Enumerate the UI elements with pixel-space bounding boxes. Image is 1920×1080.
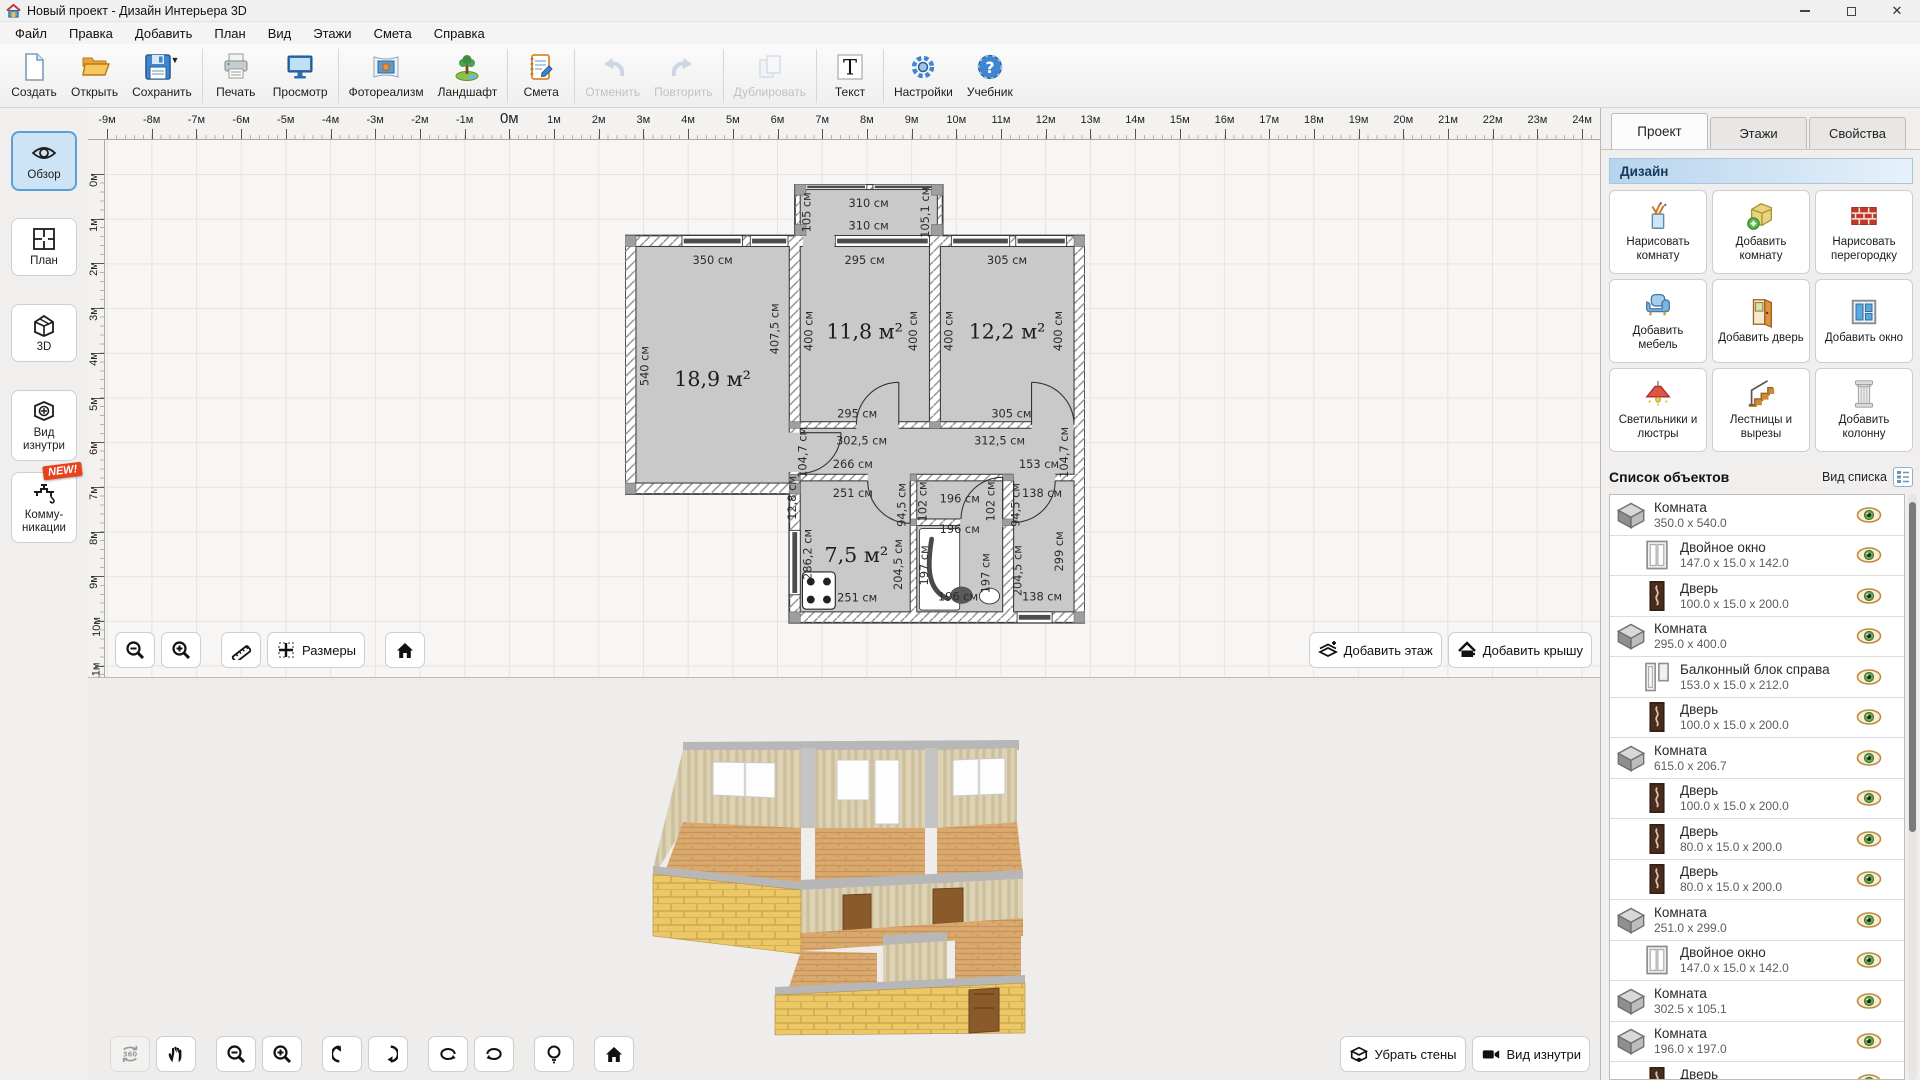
ruler-h-label: 24м [1572, 114, 1592, 126]
save-dropdown-arrow-icon[interactable]: ▼ [171, 55, 180, 65]
rotate-down-button[interactable] [368, 1036, 408, 1072]
visibility-eye-icon[interactable] [1856, 506, 1882, 524]
object-list-item[interactable]: Двойное окно147.0 x 15.0 x 142.0 [1610, 536, 1904, 577]
menu-item-3[interactable]: План [203, 24, 256, 43]
ruler-h-label: 13м [1080, 114, 1100, 126]
zoom-out-icon [226, 1044, 246, 1064]
ruler-tick [375, 129, 376, 139]
door-icon [1642, 782, 1672, 814]
orbit-right-button[interactable] [474, 1036, 514, 1072]
toolbar-label: Ландшафт [438, 85, 498, 99]
plan-dimension-label: 94,5 см [1008, 483, 1022, 527]
list-view-mode-button[interactable] [1893, 467, 1913, 487]
object-name: Двойное окно [1680, 945, 1789, 960]
ruler-tick [733, 129, 734, 139]
toolbar-label: Печать [216, 85, 255, 99]
plan-dimension-label: 400 см [942, 311, 956, 351]
ruler-h-label: 4м [681, 114, 695, 126]
visibility-eye-icon[interactable] [1856, 749, 1882, 767]
add-column-button[interactable]: Добавить колонну [1815, 368, 1913, 452]
draw-room-button[interactable]: Нарисовать комнату [1609, 190, 1707, 274]
hand-icon [166, 1044, 186, 1064]
design-button-label: Добавить окно [1825, 332, 1903, 346]
ruler-tick [95, 263, 104, 264]
window-icon [1848, 296, 1880, 328]
view3d-zoom-in-button[interactable] [262, 1036, 302, 1072]
plan-dimension-label: 197 см [978, 553, 992, 593]
plan-dimension-label: 310 см [848, 196, 888, 210]
menu-item-4[interactable]: Вид [257, 24, 303, 43]
sidebar-item-view-inside[interactable]: Вид изнутри [11, 390, 77, 461]
plan-dimension-label: 400 см [1051, 311, 1065, 351]
ruler-v-label: 2м [88, 263, 100, 277]
ruler-tick [1493, 129, 1494, 139]
visibility-eye-icon[interactable] [1856, 870, 1882, 888]
ruler-tick [1403, 129, 1404, 139]
window-title: Новый проект - Дизайн Интерьера 3D [27, 4, 247, 18]
add-floor-icon [1318, 640, 1338, 660]
ruler-v-label: 6м [88, 441, 100, 455]
settings-button[interactable]: Настройки [887, 50, 960, 101]
tab-properties[interactable]: Свойства [1809, 117, 1906, 149]
ruler-tick [241, 129, 242, 139]
visibility-eye-icon[interactable] [1856, 830, 1882, 848]
room-area-label: 7,5 м² [825, 543, 889, 567]
plan-dimension-label: 286,2 см [801, 529, 815, 580]
ruler-tick [778, 129, 779, 139]
plan-dimension-label: 540 см [638, 346, 652, 386]
toolbar-label: Отменить [585, 85, 640, 99]
door-icon [1642, 823, 1672, 855]
object-name: Дверь [1680, 581, 1789, 596]
ruler-v-label: 9м [88, 575, 100, 589]
object-dimensions: 295.0 x 400.0 [1654, 637, 1727, 651]
plan-dimension-label: 299 см [1052, 531, 1066, 571]
brick-wall-icon [1848, 200, 1880, 232]
toolbar-separator [507, 49, 508, 103]
rotate-vertical-icon [378, 1044, 398, 1064]
sidebar-label: 3D [37, 341, 52, 354]
lighting-button[interactable] [534, 1036, 574, 1072]
ruler-tick [286, 129, 287, 139]
visibility-eye-icon[interactable] [1856, 546, 1882, 564]
object-name: Комната [1654, 743, 1727, 758]
toolbar-label: Создать [11, 85, 57, 99]
tutorial-button[interactable]: ? Учебник [960, 50, 1020, 101]
ruler-h-label: 22м [1483, 114, 1503, 126]
photorealism-button[interactable]: Фотореализм [342, 50, 431, 101]
ruler-tick [331, 129, 332, 139]
menu-item-0[interactable]: Файл [4, 24, 58, 43]
svg-text:360: 360 [123, 1051, 137, 1059]
ruler-h-label: -7м [188, 114, 205, 126]
view3d-area[interactable]: 360 [88, 677, 1600, 1080]
add-door-button[interactable]: Добавить дверь [1712, 279, 1810, 363]
ruler-h-label: 6м [771, 114, 785, 126]
object-name: Дверь [1680, 783, 1789, 798]
room-icon [1616, 742, 1646, 774]
plan-dimension-label: 105,1 см [918, 187, 932, 238]
ruler-h-label: -2м [411, 114, 428, 126]
visibility-eye-icon[interactable] [1856, 911, 1882, 929]
ruler-v-label: 3м [88, 307, 100, 321]
design-button-label: Добавить комнату [1715, 236, 1807, 264]
close-button[interactable]: ✕ [1874, 0, 1920, 22]
ruler-tick [95, 398, 104, 399]
sidebar-item-3d[interactable]: 3D [11, 304, 77, 362]
object-dimensions: 147.0 x 15.0 x 142.0 [1680, 556, 1789, 570]
remove-walls-label: Убрать стены [1375, 1047, 1457, 1062]
visibility-eye-icon[interactable] [1856, 627, 1882, 645]
column-icon [1848, 378, 1880, 410]
plan-dimension-label: 400 см [906, 311, 920, 351]
ruler-tick [643, 129, 644, 139]
open-button[interactable]: Открыть [64, 50, 125, 101]
ruler-tick [1537, 129, 1538, 139]
estimate-button[interactable]: Смета [511, 50, 571, 101]
visibility-eye-icon[interactable] [1856, 587, 1882, 605]
zoom-in-icon [272, 1044, 292, 1064]
ruler-tick [95, 487, 104, 488]
object-list-item[interactable]: Балконный блок справа153.0 x 15.0 x 212.… [1610, 657, 1904, 698]
menu-item-7[interactable]: Справка [423, 24, 496, 43]
door-icon [1642, 580, 1672, 612]
plan-zoom-in-button[interactable] [161, 632, 201, 668]
add-roof-icon [1457, 640, 1477, 660]
object-name: Дверь [1680, 1067, 1782, 1080]
visibility-eye-icon[interactable] [1856, 1073, 1882, 1080]
new-badge: NEW! [42, 462, 83, 481]
ruler-tick [1269, 129, 1270, 139]
object-dimensions: 100.0 x 15.0 x 200.0 [1680, 597, 1789, 611]
floor-plan-icon [31, 226, 57, 252]
design-button-label: Добавить дверь [1718, 332, 1804, 346]
ruler-h-label: 11м [992, 114, 1011, 126]
ruler-tick [1582, 129, 1583, 139]
object-list-item[interactable]: Комната350.0 x 540.0 [1610, 495, 1904, 536]
object-dimensions: 80.0 x 15.0 x 200.0 [1680, 840, 1782, 854]
remove-walls-button[interactable]: Убрать стены [1340, 1036, 1466, 1072]
camera-icon [1481, 1044, 1501, 1064]
object-list-item[interactable]: Комната251.0 x 299.0 [1610, 900, 1904, 941]
ruler-h-label: 10м [946, 114, 966, 126]
design-button-label: Светильники и люстры [1612, 414, 1704, 442]
ruler-tick [95, 308, 104, 309]
object-list-item[interactable]: Комната615.0 x 206.7 [1610, 738, 1904, 779]
horizontal-ruler: -9м-8м-7м-6м-5м-4м-3м-2м-1м0м1м2м3м4м5м6… [88, 108, 1600, 140]
add-window-button[interactable]: Добавить окно [1815, 279, 1913, 363]
plan-dimension-label: 138 см [1022, 589, 1062, 603]
faucet-icon [31, 480, 57, 506]
tree-icon [452, 52, 482, 82]
object-list-item[interactable]: Дверь100.0 x 15.0 x 200.0 [1610, 576, 1904, 617]
object-name: Комната [1654, 621, 1727, 636]
scrollbar-thumb[interactable] [1909, 502, 1916, 832]
ruler-h-label: 23м [1527, 114, 1547, 126]
ruler-tick [509, 129, 510, 139]
save-button[interactable]: ▼ Сохранить [125, 50, 199, 101]
home-icon [604, 1044, 624, 1064]
plan-dimension-label: 153 см [1019, 457, 1059, 471]
object-dimensions: 153.0 x 15.0 x 212.0 [1680, 678, 1830, 692]
plan-dimension-label: 312,5 см [974, 433, 1025, 447]
room-icon [1616, 620, 1646, 652]
new-project-button[interactable]: Создать [4, 50, 64, 101]
door-icon [1745, 296, 1777, 328]
visibility-eye-icon[interactable] [1856, 1032, 1882, 1050]
home-icon [395, 640, 415, 660]
door-icon [1642, 701, 1672, 733]
plan-dimension-label: 350 см [693, 253, 733, 267]
ruler-h-label: -4м [322, 114, 339, 126]
orbit-left-button[interactable] [428, 1036, 468, 1072]
titlebar: Новый проект - Дизайн Интерьера 3D ✕ [0, 0, 1920, 22]
eye-icon [31, 140, 57, 166]
visibility-eye-icon[interactable] [1856, 708, 1882, 726]
ruler-v-label: 4м [88, 352, 100, 366]
add-furniture-button[interactable]: Добавить мебель [1609, 279, 1707, 363]
plan-dimension-label: 105 см [800, 192, 814, 232]
new-document-icon [19, 52, 49, 82]
minimize-button[interactable] [1782, 0, 1828, 22]
menu-item-6[interactable]: Смета [363, 24, 423, 43]
print-button[interactable]: Печать [206, 50, 266, 101]
orbit-horizontal-icon [438, 1044, 458, 1064]
toolbar-label: Смета [524, 85, 559, 99]
draw-partition-button[interactable]: Нарисовать перегородку [1815, 190, 1913, 274]
ruler-v-label: 0м [88, 173, 100, 187]
text-button[interactable]: T Текст [820, 50, 880, 101]
ruler-h-label: 8м [860, 114, 874, 126]
ruler-tick [95, 576, 104, 577]
object-list-item[interactable]: Дверь80.0 x 15.0 x 200.0 [1610, 819, 1904, 860]
door-icon [1642, 863, 1672, 895]
interior-view-icon [31, 398, 57, 424]
ruler-tick [867, 129, 868, 139]
text-icon: T [835, 52, 865, 82]
main-toolbar: Создать Открыть ▼ Сохранить Печать Просм… [0, 44, 1920, 108]
plan-dimension-label: 204,5 см [1010, 545, 1024, 596]
ruler-tick [1359, 129, 1360, 139]
ruler-v-label: 7м [88, 486, 100, 500]
landscape-button[interactable]: Ландшафт [431, 50, 505, 101]
toolbar-separator [723, 49, 724, 103]
design-button-label: Нарисовать комнату [1612, 236, 1704, 264]
window-icon [1642, 944, 1672, 976]
sidebar-item-overview[interactable]: Обзор [11, 131, 77, 191]
duplicate-button: Дублировать [727, 50, 813, 101]
visibility-eye-icon[interactable] [1856, 668, 1882, 686]
object-dimensions: 196.0 x 197.0 [1654, 1042, 1727, 1056]
house-3d-icon [31, 312, 57, 338]
ruler-h-label: -5м [277, 114, 294, 126]
menu-item-2[interactable]: Добавить [124, 24, 203, 43]
sidebar-label: План [30, 255, 58, 268]
toolbar-label: Сохранить [132, 85, 192, 99]
toolbar-label: Повторить [654, 85, 713, 99]
toolbar-separator [338, 49, 339, 103]
ruler-tick [822, 129, 823, 139]
room-icon [1616, 1025, 1646, 1057]
plan-dimension-label: 102 см [915, 481, 929, 521]
plan-dimension-label: 295 см [837, 406, 877, 420]
plan-dimension-label: 12,8 см [785, 476, 799, 520]
ruler-icon [231, 640, 251, 660]
stairs-button[interactable]: Лестницы и вырезы [1712, 368, 1810, 452]
sidebar-label: Комму- никации [14, 509, 74, 535]
plan-canvas[interactable]: 310 см310 см105 см105,1 см350 см295 см30… [105, 140, 1600, 677]
ruler-h-label: 18м [1304, 114, 1324, 126]
toolbar-label: Настройки [894, 85, 953, 99]
ruler-h-label: 2м [592, 114, 606, 126]
object-list-item[interactable]: Дверь100.0 x 15.0 x 200.0 [1610, 698, 1904, 739]
open-box-icon [1349, 1044, 1369, 1064]
room-area-label: 12,2 м² [969, 319, 1046, 343]
object-name: Комната [1654, 1026, 1727, 1041]
rotate-vertical-icon [332, 1044, 352, 1064]
design-section-header: Дизайн [1609, 158, 1913, 184]
room-area-label: 18,9 м² [674, 367, 751, 391]
measure-ruler-button[interactable] [221, 632, 261, 668]
plan-dimension-label: 302,5 см [836, 433, 887, 447]
object-list-item[interactable]: Дверь80.0 x 15.0 x 200.0 [1610, 860, 1904, 901]
plan-dimension-label: 305 см [987, 253, 1027, 267]
object-list-item[interactable]: Комната302.5 x 105.1 [1610, 981, 1904, 1022]
plan-dimension-label: 138 см [1022, 486, 1062, 500]
object-list-item[interactable]: Двойное окно147.0 x 15.0 x 142.0 [1610, 941, 1904, 982]
ruler-tick [465, 129, 466, 139]
visibility-eye-icon[interactable] [1856, 789, 1882, 807]
object-list-title: Список объектов [1609, 469, 1729, 485]
plan-dimension-label: 251 см [837, 590, 877, 604]
rotate-360-icon: 360 [120, 1044, 140, 1064]
plan-zoom-out-button[interactable] [115, 632, 155, 668]
rotate-360-button: 360 [110, 1036, 150, 1072]
object-name: Двойное окно [1680, 540, 1789, 555]
ruler-tick [95, 219, 104, 220]
duplicate-pages-icon [755, 52, 785, 82]
add-floor-button[interactable]: Добавить этаж [1309, 632, 1442, 668]
open-folder-icon [80, 52, 110, 82]
view-inside-button[interactable]: Вид изнутри [1472, 1036, 1590, 1072]
menu-item-5[interactable]: Этажи [302, 24, 362, 43]
ruler-tick [95, 353, 104, 354]
ruler-h-label: 1м [547, 114, 561, 126]
ruler-tick [95, 174, 104, 175]
tab-floors[interactable]: Этажи [1710, 117, 1807, 149]
object-name: Комната [1654, 986, 1727, 1001]
object-list-item[interactable]: Комната295.0 x 400.0 [1610, 617, 1904, 658]
room-icon [1616, 499, 1646, 531]
view3d-zoom-out-button[interactable] [216, 1036, 256, 1072]
ruler-h-label: 5м [726, 114, 740, 126]
object-list-item[interactable]: Комната196.0 x 197.0 [1610, 1022, 1904, 1063]
add-room-button[interactable]: Добавить комнату [1712, 190, 1810, 274]
ruler-h-label: 15м [1170, 114, 1190, 126]
ruler-tick [688, 129, 689, 139]
visibility-eye-icon[interactable] [1856, 992, 1882, 1010]
ruler-tick [599, 129, 600, 139]
ruler-tick [152, 129, 153, 139]
design-buttons-grid: Нарисовать комнату Добавить комнату Нари… [1609, 190, 1913, 452]
ruler-h-label: 21м [1438, 114, 1458, 126]
plan-dimension-label: 197 см [917, 545, 931, 585]
object-dimensions: 350.0 x 540.0 [1654, 516, 1727, 530]
maximize-button[interactable] [1828, 0, 1874, 22]
object-list-item[interactable]: Дверь80.0 x 15.0 x 200.0 [1610, 1062, 1904, 1080]
plan-dimension-label: 295 см [845, 253, 885, 267]
plan-home-button[interactable] [385, 632, 425, 668]
view3d-home-button[interactable] [594, 1036, 634, 1072]
zoom-in-icon [171, 640, 191, 660]
plan-dimension-label: 104,7 см [1057, 427, 1071, 478]
undo-arrow-icon [598, 52, 628, 82]
object-name: Балконный блок справа [1680, 662, 1830, 677]
plan-toolbar-right: Добавить этаж Добавить крышу [1309, 632, 1592, 668]
object-list-scrollbar[interactable] [1908, 494, 1917, 1080]
pan-button[interactable] [156, 1036, 196, 1072]
ruler-tick [95, 621, 104, 622]
balcony-icon [1642, 661, 1672, 693]
redo-arrow-icon [668, 52, 698, 82]
object-dimensions: 615.0 x 206.7 [1654, 759, 1727, 773]
toolbar-separator [816, 49, 817, 103]
estimate-notepad-icon [526, 52, 556, 82]
view-inside-label: Вид изнутри [1507, 1047, 1581, 1062]
ruler-tick [1001, 129, 1002, 139]
orbit-horizontal-icon [484, 1044, 504, 1064]
ruler-h-label: 14м [1125, 114, 1145, 126]
zoom-out-icon [125, 640, 145, 660]
object-dimensions: 302.5 x 105.1 [1654, 1002, 1727, 1016]
object-dimensions: 147.0 x 15.0 x 142.0 [1680, 961, 1789, 975]
object-list-header: Список объектов Вид списка [1609, 464, 1913, 490]
sidebar-item-communications[interactable]: NEW! Комму- никации [11, 472, 77, 543]
ruler-tick [1314, 129, 1315, 139]
room-icon [1616, 904, 1646, 936]
sidebar-label: Обзор [27, 169, 60, 182]
list-view-icon [1896, 470, 1910, 484]
add-roof-button[interactable]: Добавить крышу [1448, 632, 1592, 668]
ruler-h-label: 9м [905, 114, 919, 126]
menu-item-1[interactable]: Правка [58, 24, 124, 43]
ruler-h-label: -6м [232, 114, 249, 126]
dimensions-icon [276, 640, 296, 660]
ruler-tick [1225, 129, 1226, 139]
design-button-label: Добавить колонну [1818, 414, 1910, 442]
ruler-h-label: 3м [637, 114, 651, 126]
preview-button[interactable]: Просмотр [266, 50, 335, 101]
toolbar-label: Учебник [967, 85, 1013, 99]
add-room-icon [1745, 200, 1777, 232]
ruler-h-label: -1м [456, 114, 473, 126]
stairs-icon [1745, 378, 1777, 410]
door-icon [1642, 1066, 1672, 1080]
lights-button[interactable]: Светильники и люстры [1609, 368, 1707, 452]
dimensions-toggle-button[interactable]: Размеры [267, 632, 365, 668]
sidebar-item-plan[interactable]: План [11, 218, 77, 276]
ruler-tick [1180, 129, 1181, 139]
object-list-item[interactable]: Дверь100.0 x 15.0 x 200.0 [1610, 779, 1904, 820]
visibility-eye-icon[interactable] [1856, 951, 1882, 969]
ruler-tick [95, 532, 104, 533]
ruler-tick [196, 129, 197, 139]
photorealism-icon [371, 52, 401, 82]
toolbar-label: Открыть [71, 85, 118, 99]
ruler-tick [95, 666, 104, 667]
rotate-up-button[interactable] [322, 1036, 362, 1072]
tab-project[interactable]: Проект [1611, 113, 1708, 149]
